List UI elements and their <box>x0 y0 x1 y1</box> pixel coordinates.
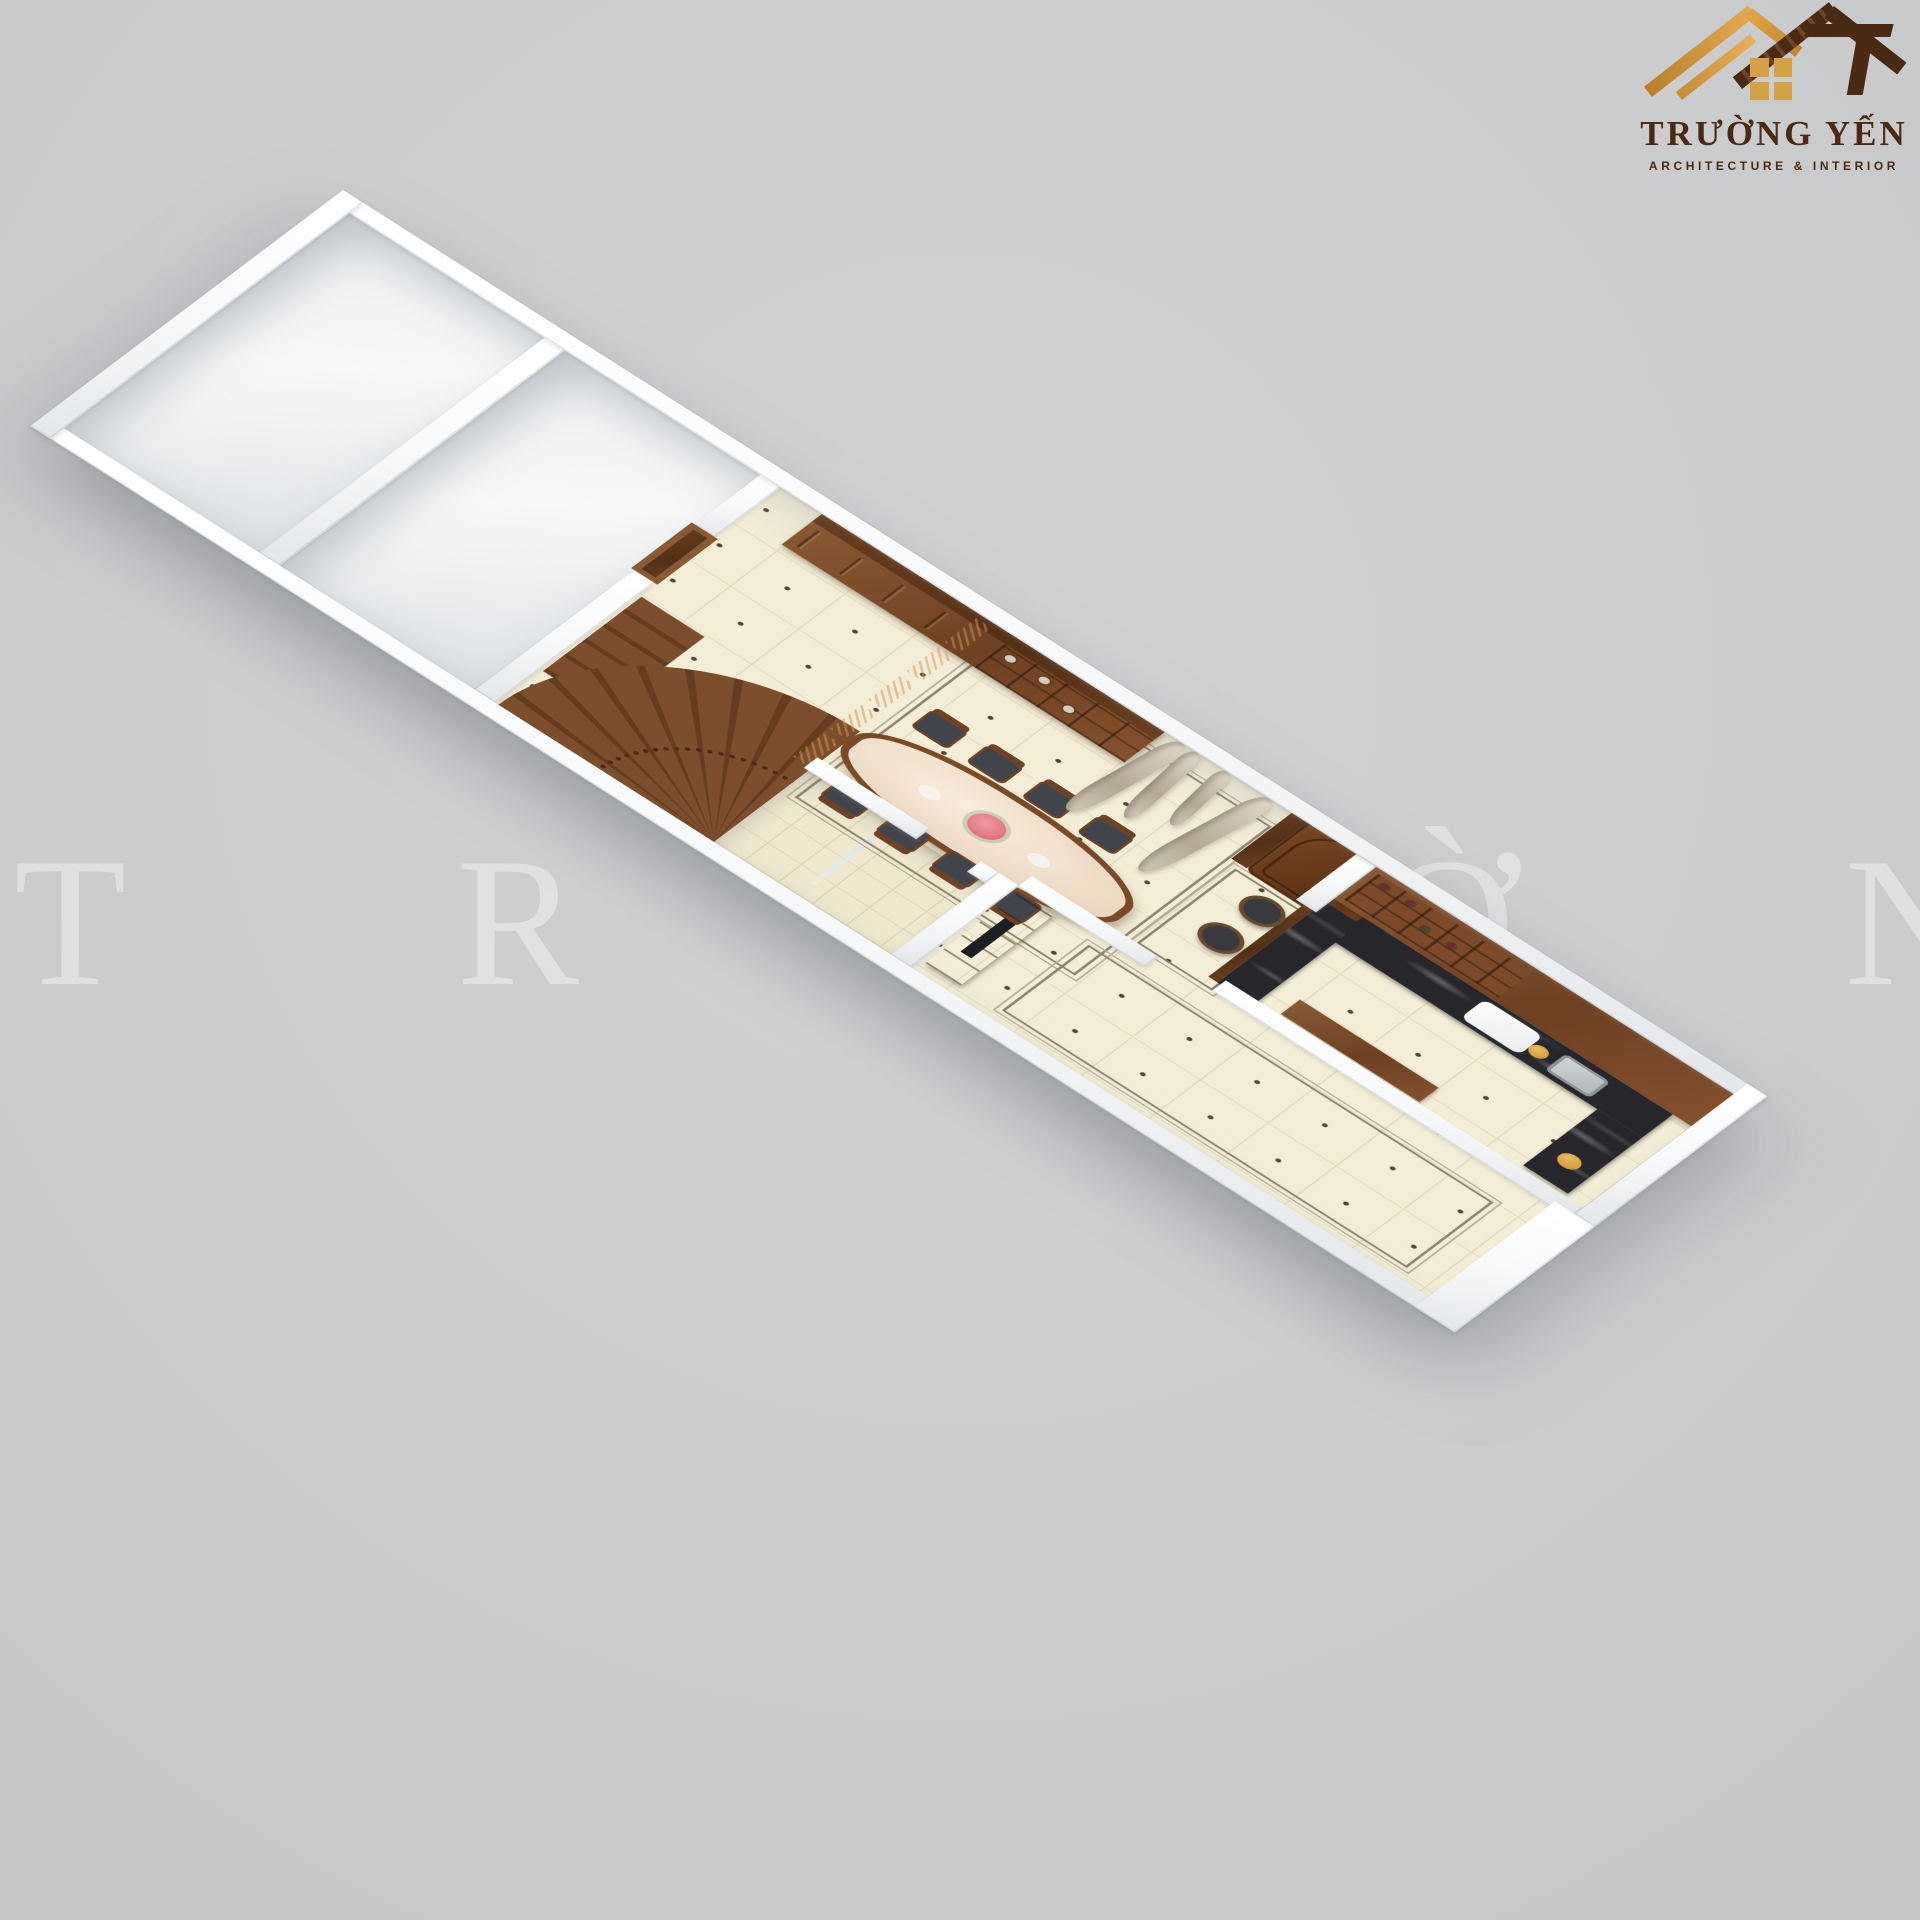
letter-t-bar-icon <box>1804 24 1893 37</box>
window-grid-icon <box>1750 58 1792 100</box>
letter-t-stem-icon <box>1847 35 1874 95</box>
table-dish <box>1023 850 1054 871</box>
flower-centerpiece <box>959 808 1014 845</box>
floor-plan-render: TRƯỜNG YẾN <box>0 0 1920 1920</box>
brand-tagline: ARCHITECTURE & INTERIOR <box>1638 159 1910 173</box>
house-plan <box>30 190 1767 1333</box>
table-dish <box>914 782 945 803</box>
brand-logo: TRƯỜNG YẾN ARCHITECTURE & INTERIOR <box>1638 10 1910 173</box>
brand-name: TRƯỜNG YẾN <box>1638 114 1910 154</box>
logo-house-icon <box>1648 10 1900 106</box>
